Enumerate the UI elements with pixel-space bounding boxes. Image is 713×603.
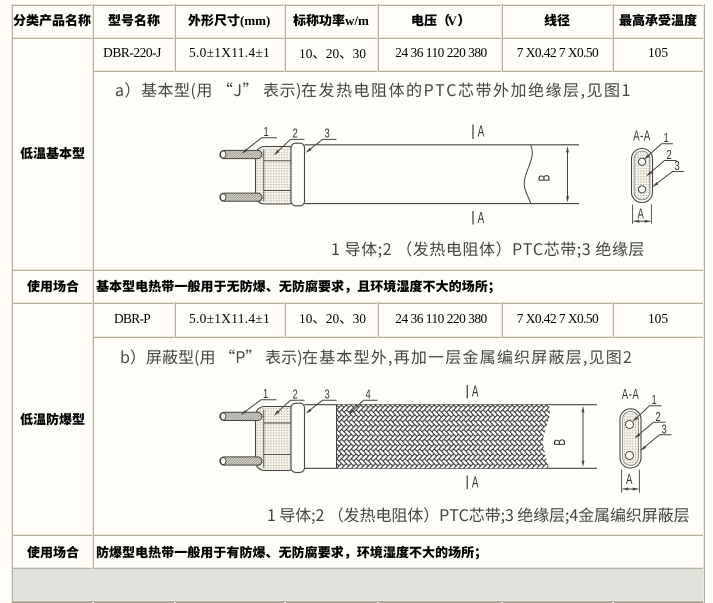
svg-text:3: 3: [325, 127, 330, 141]
svg-text:4: 4: [366, 388, 371, 402]
svg-text:1: 1: [263, 388, 268, 402]
svg-text:B: B: [535, 174, 553, 181]
svg-text:2: 2: [293, 388, 298, 402]
svg-text:A: A: [638, 205, 645, 222]
svg-text:1: 1: [264, 126, 269, 140]
svg-text:A: A: [478, 209, 485, 227]
svg-text:A: A: [478, 122, 485, 140]
svg-text:B: B: [551, 439, 569, 446]
svg-text:2: 2: [293, 127, 298, 141]
svg-text:2: 2: [667, 149, 672, 163]
svg-text:1: 1: [664, 132, 669, 146]
svg-text:3: 3: [675, 160, 680, 174]
svg-text:A-A: A-A: [622, 386, 640, 403]
svg-text:3: 3: [325, 388, 330, 402]
svg-text:3: 3: [662, 423, 667, 437]
svg-text:2: 2: [656, 411, 661, 425]
svg-text:A: A: [472, 473, 479, 491]
svg-text:A-A: A-A: [633, 128, 651, 145]
svg-text:1: 1: [652, 394, 657, 408]
svg-text:A: A: [626, 471, 633, 488]
svg-text:A: A: [472, 382, 479, 400]
